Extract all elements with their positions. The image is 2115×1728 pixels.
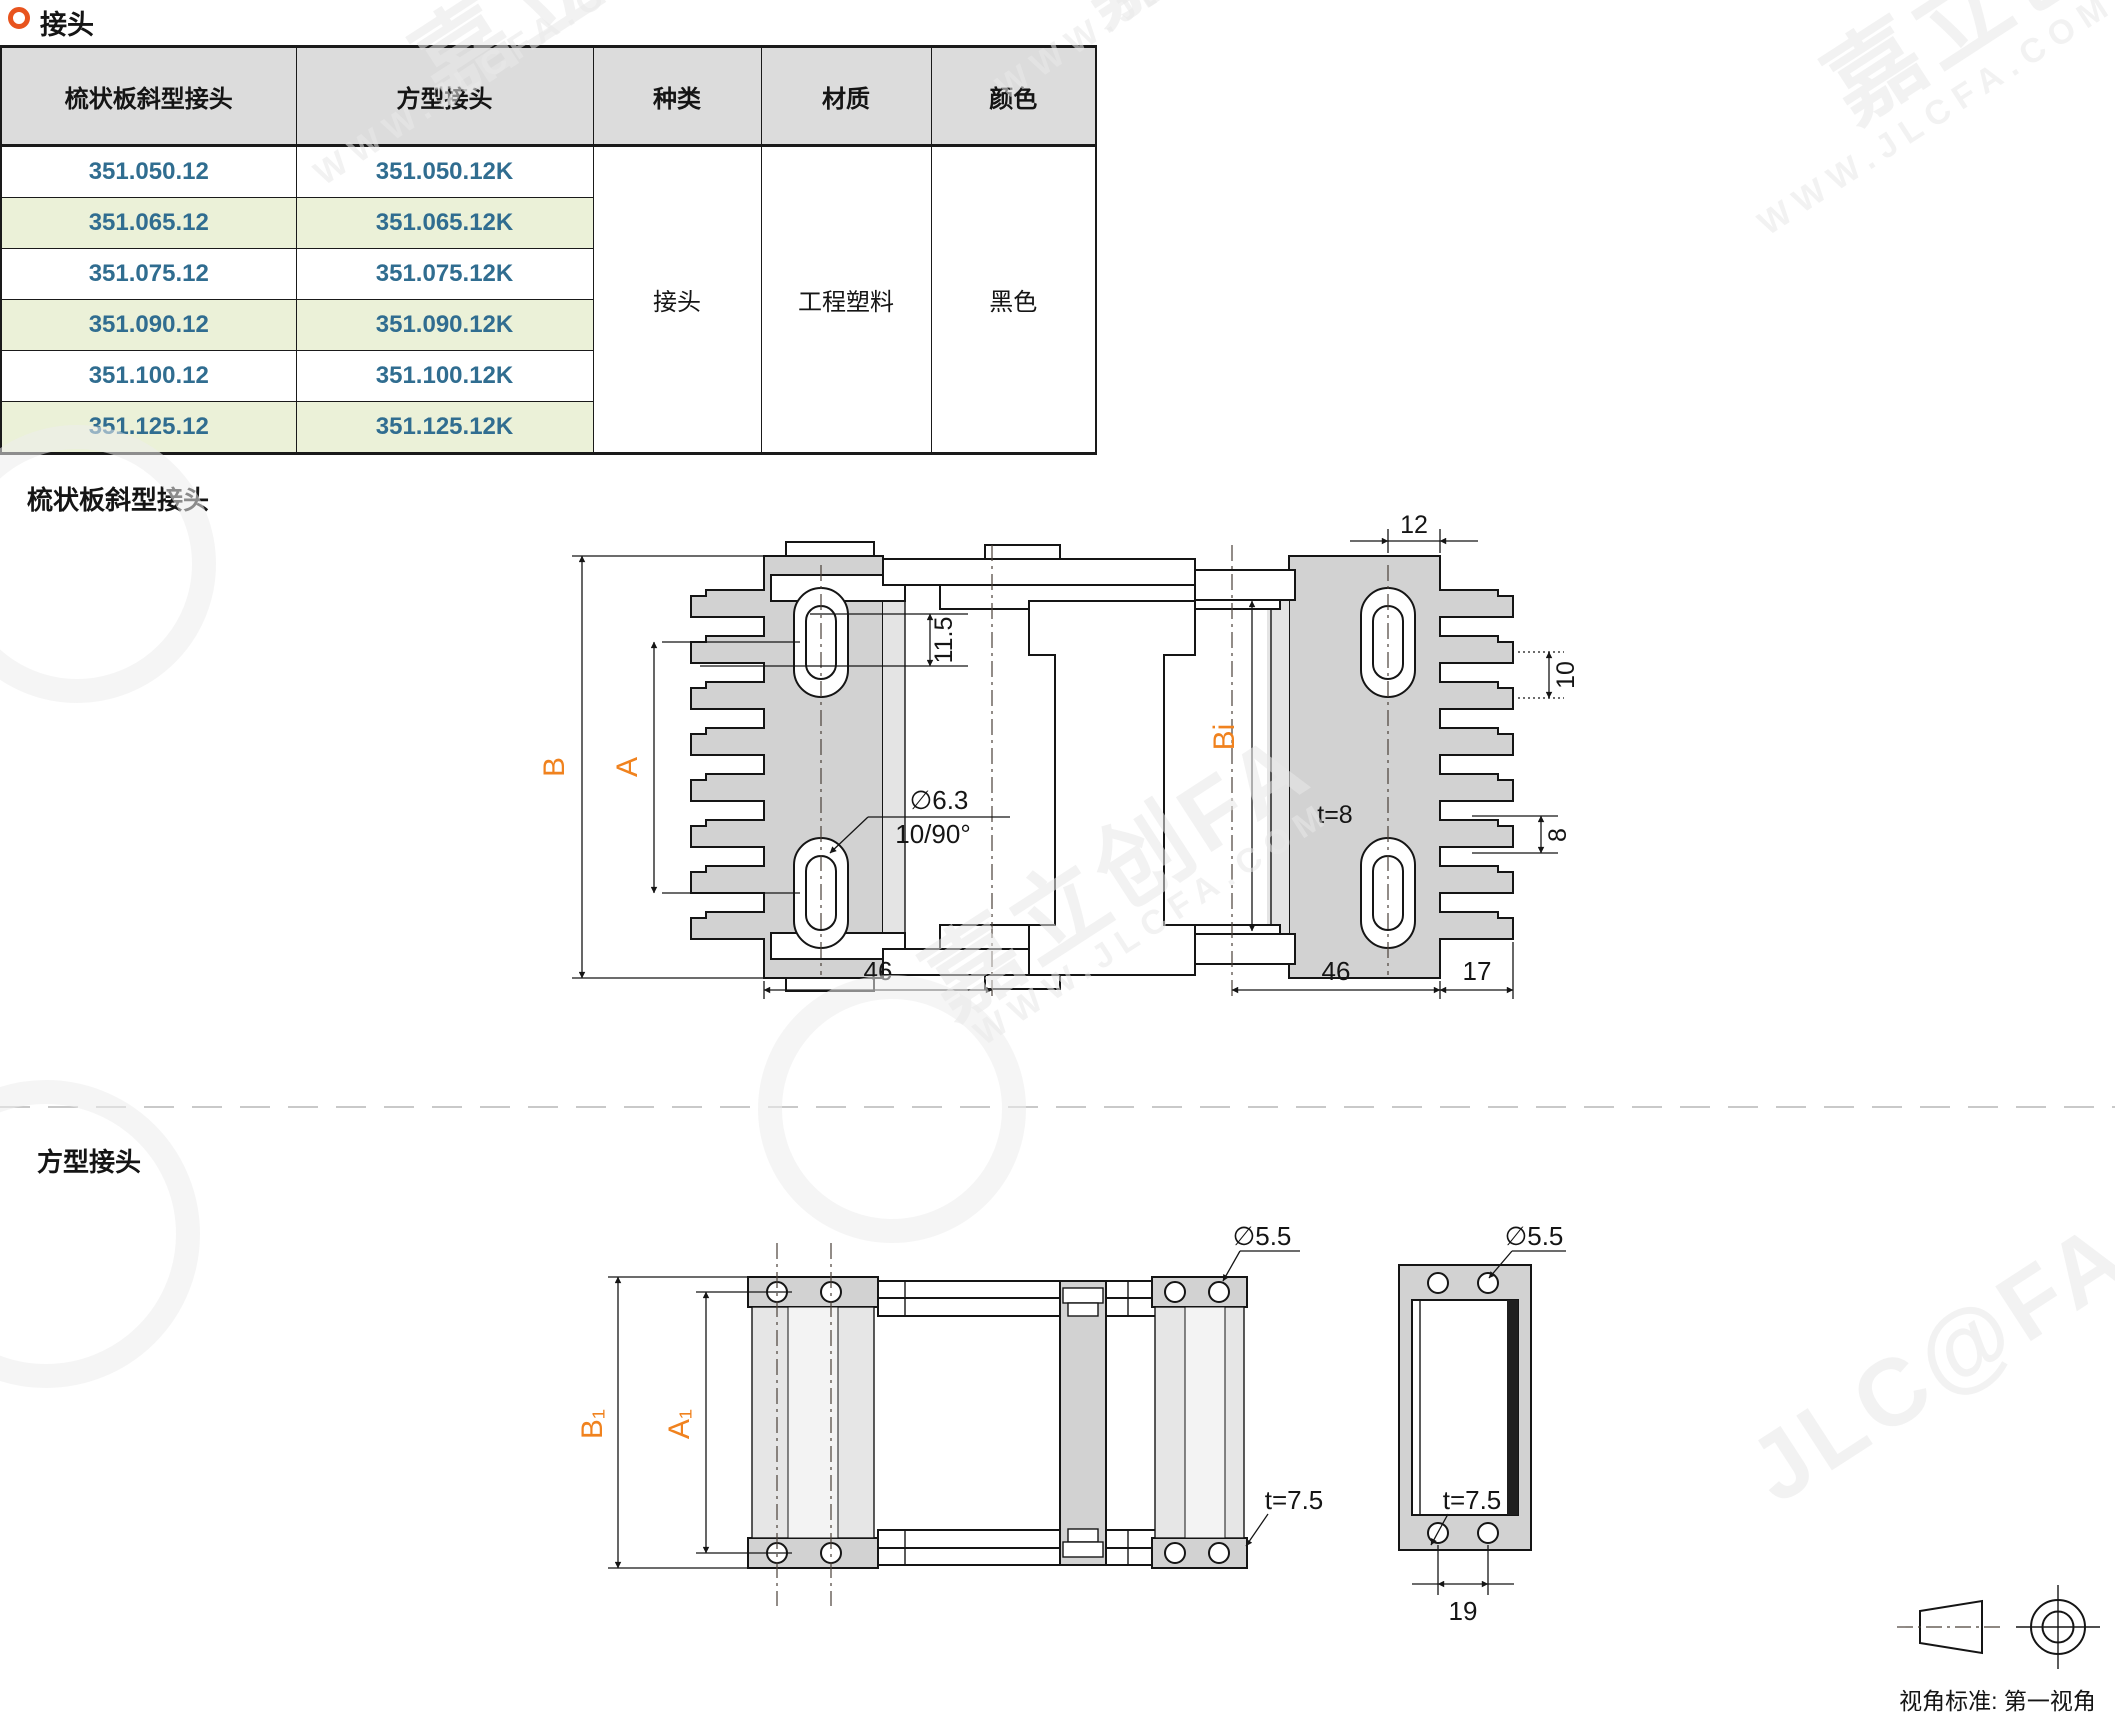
part-number-link[interactable]: 351.125.12 (1, 402, 296, 454)
dim-8: 8 (1544, 828, 1572, 842)
col-header-color: 颜色 (931, 47, 1096, 146)
spec-table: 梳状板斜型接头 方型接头 种类 材质 颜色 351.050.12 351.050… (0, 45, 1097, 455)
page-title: 接头 (40, 3, 94, 42)
dim-11-5: 11.5 (930, 617, 958, 664)
part-number-link[interactable]: 351.125.12K (296, 402, 593, 454)
front-center-column (1060, 1281, 1106, 1565)
dim-hole-5-5-front: ∅5.5 (1233, 1221, 1292, 1251)
table-row: 351.050.12 351.050.12K 接头 工程塑料 黑色 (1, 146, 1096, 198)
watermark-brand-cn: 嘉立创FA (1795, 0, 2115, 148)
dim-t8: t=8 (1317, 801, 1352, 829)
dim-hole-5-5-side: ∅5.5 (1505, 1221, 1564, 1251)
part-number-link[interactable]: 351.090.12K (296, 300, 593, 351)
dim-46-right: 46 (1322, 956, 1351, 986)
part-number-link[interactable]: 351.050.12K (296, 146, 593, 198)
watermark-url: WWW.JLCFA.COM (1751, 0, 2115, 244)
dim-t7-5-side: t=7.5 (1443, 1485, 1502, 1515)
side-view-shadow-edge (1507, 1300, 1518, 1515)
left-comb-plate (691, 556, 883, 978)
watermark-ring-icon (0, 425, 216, 703)
view-standard-note: 视角标准: 第一视角 (1880, 1682, 2115, 1716)
merged-material-cell: 工程塑料 (761, 146, 931, 454)
col-header-material: 材质 (761, 47, 931, 146)
table-header-row: 梳状板斜型接头 方型接头 种类 材质 颜色 (1, 47, 1096, 146)
part-number-link[interactable]: 351.065.12 (1, 198, 296, 249)
dim-19: 19 (1449, 1596, 1478, 1626)
part-number-link[interactable]: 351.065.12K (296, 198, 593, 249)
section-divider (0, 1106, 2115, 1108)
section-bullet-icon (8, 7, 30, 29)
dim-t7-5-front: t=7.5 (1265, 1485, 1324, 1515)
dim-46-left: 46 (864, 956, 893, 986)
dim-A: A (611, 757, 644, 777)
merged-color-cell: 黑色 (931, 146, 1096, 454)
dim-17: 17 (1463, 956, 1492, 986)
dim-Bi: Bi (1208, 724, 1241, 751)
section-title-square: 方型接头 (37, 1142, 141, 1179)
dim-12: 12 (1400, 515, 1428, 539)
part-number-link[interactable]: 351.075.12 (1, 249, 296, 300)
dim-B: B (540, 757, 571, 777)
part-number-link[interactable]: 351.100.12 (1, 351, 296, 402)
col-header-square-connector: 方型接头 (296, 47, 593, 146)
watermark-ring-icon (0, 1080, 200, 1388)
comb-connector-drawing: B A Bi 11.5 12 10 8 t=8 ∅6.3 10/90° 46 4… (540, 515, 1600, 1025)
section-title-comb: 梳状板斜型接头 (27, 480, 209, 517)
front-right-panel-strip (1185, 1307, 1225, 1538)
catalog-page: 嘉立创FA WWW.JLCFA.COM 嘉立创FA WWW.JLCFA.COM … (0, 0, 2115, 1728)
col-header-comb-connector: 梳状板斜型接头 (1, 47, 296, 146)
side-view-opening (1412, 1300, 1518, 1515)
part-number-link[interactable]: 351.100.12K (296, 351, 593, 402)
part-number-link[interactable]: 351.050.12 (1, 146, 296, 198)
dim-B1: B₁ (576, 1409, 609, 1439)
first-angle-projection-icon (1840, 1580, 2115, 1690)
inner-wall-strip (883, 601, 905, 933)
watermark-brand-cn: 嘉立创FA (1043, 0, 1484, 51)
part-number-link[interactable]: 351.090.12 (1, 300, 296, 351)
part-number-link[interactable]: 351.075.12K (296, 249, 593, 300)
merged-kind-cell: 接头 (593, 146, 761, 454)
dim-A1: A₁ (663, 1409, 696, 1439)
col-header-kind: 种类 (593, 47, 761, 146)
dim-slot-10-90: 10/90° (895, 819, 970, 849)
square-connector-drawing: B₁ A₁ ∅5.5 ∅5.5 t=7.5 t=7.5 19 (560, 1195, 1620, 1655)
dim-10: 10 (1552, 661, 1580, 689)
front-link-plates (878, 1281, 1160, 1565)
dim-hole-6-3: ∅6.3 (910, 785, 969, 815)
watermark-brand: JLC@FA (1730, 1200, 2115, 1525)
